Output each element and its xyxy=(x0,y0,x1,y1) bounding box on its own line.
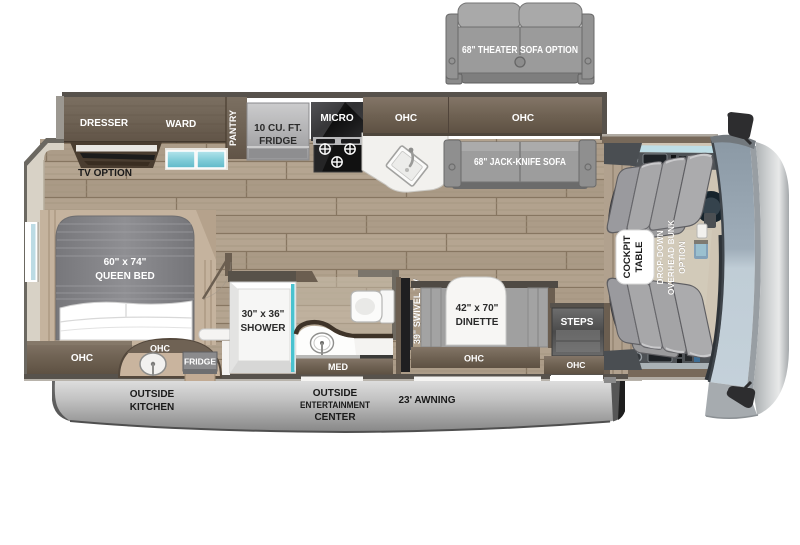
svg-text:OPTION: OPTION xyxy=(677,241,687,274)
svg-text:FRIDGE: FRIDGE xyxy=(184,357,216,367)
svg-text:SHOWER: SHOWER xyxy=(241,323,287,334)
svg-text:OUTSIDE: OUTSIDE xyxy=(313,388,358,399)
svg-text:DROP-DOWN: DROP-DOWN xyxy=(655,230,665,284)
svg-text:KITCHEN: KITCHEN xyxy=(130,402,174,413)
svg-text:OHC: OHC xyxy=(150,344,171,354)
svg-text:FRIDGE: FRIDGE xyxy=(259,136,297,147)
svg-text:68" JACK-KNIFE SOFA: 68" JACK-KNIFE SOFA xyxy=(474,157,566,168)
svg-text:OHC: OHC xyxy=(395,113,417,124)
svg-text:ENTERTAINMENT: ENTERTAINMENT xyxy=(300,400,370,411)
svg-text:OHC: OHC xyxy=(567,360,586,370)
svg-text:OHC: OHC xyxy=(464,354,485,364)
svg-text:23' AWNING: 23' AWNING xyxy=(398,395,455,406)
svg-text:42" x 70": 42" x 70" xyxy=(456,303,499,314)
svg-text:DINETTE: DINETTE xyxy=(456,317,499,328)
svg-text:30" x 36": 30" x 36" xyxy=(242,309,285,320)
svg-text:MICRO: MICRO xyxy=(320,113,354,124)
svg-text:OVERHEAD BUNK: OVERHEAD BUNK xyxy=(666,219,676,295)
svg-text:PANTRY: PANTRY xyxy=(228,110,238,146)
svg-text:DRESSER: DRESSER xyxy=(80,118,129,129)
svg-text:68" THEATER SOFA OPTION: 68" THEATER SOFA OPTION xyxy=(462,44,578,56)
svg-text:OHC: OHC xyxy=(512,113,534,124)
svg-text:TABLE: TABLE xyxy=(634,242,645,273)
svg-text:CENTER: CENTER xyxy=(314,412,356,423)
svg-text:QUEEN BED: QUEEN BED xyxy=(95,271,154,282)
svg-text:MED: MED xyxy=(328,362,349,372)
svg-text:COCKPIT: COCKPIT xyxy=(622,235,633,278)
svg-text:WARD: WARD xyxy=(166,119,197,130)
svg-text:OUTSIDE: OUTSIDE xyxy=(130,389,175,400)
svg-text:STEPS: STEPS xyxy=(561,317,594,328)
svg-text:TV OPTION: TV OPTION xyxy=(78,168,132,179)
svg-text:10 CU. FT.: 10 CU. FT. xyxy=(254,123,302,134)
svg-text:OHC: OHC xyxy=(71,353,93,364)
svg-text:60" x 74": 60" x 74" xyxy=(104,257,147,268)
